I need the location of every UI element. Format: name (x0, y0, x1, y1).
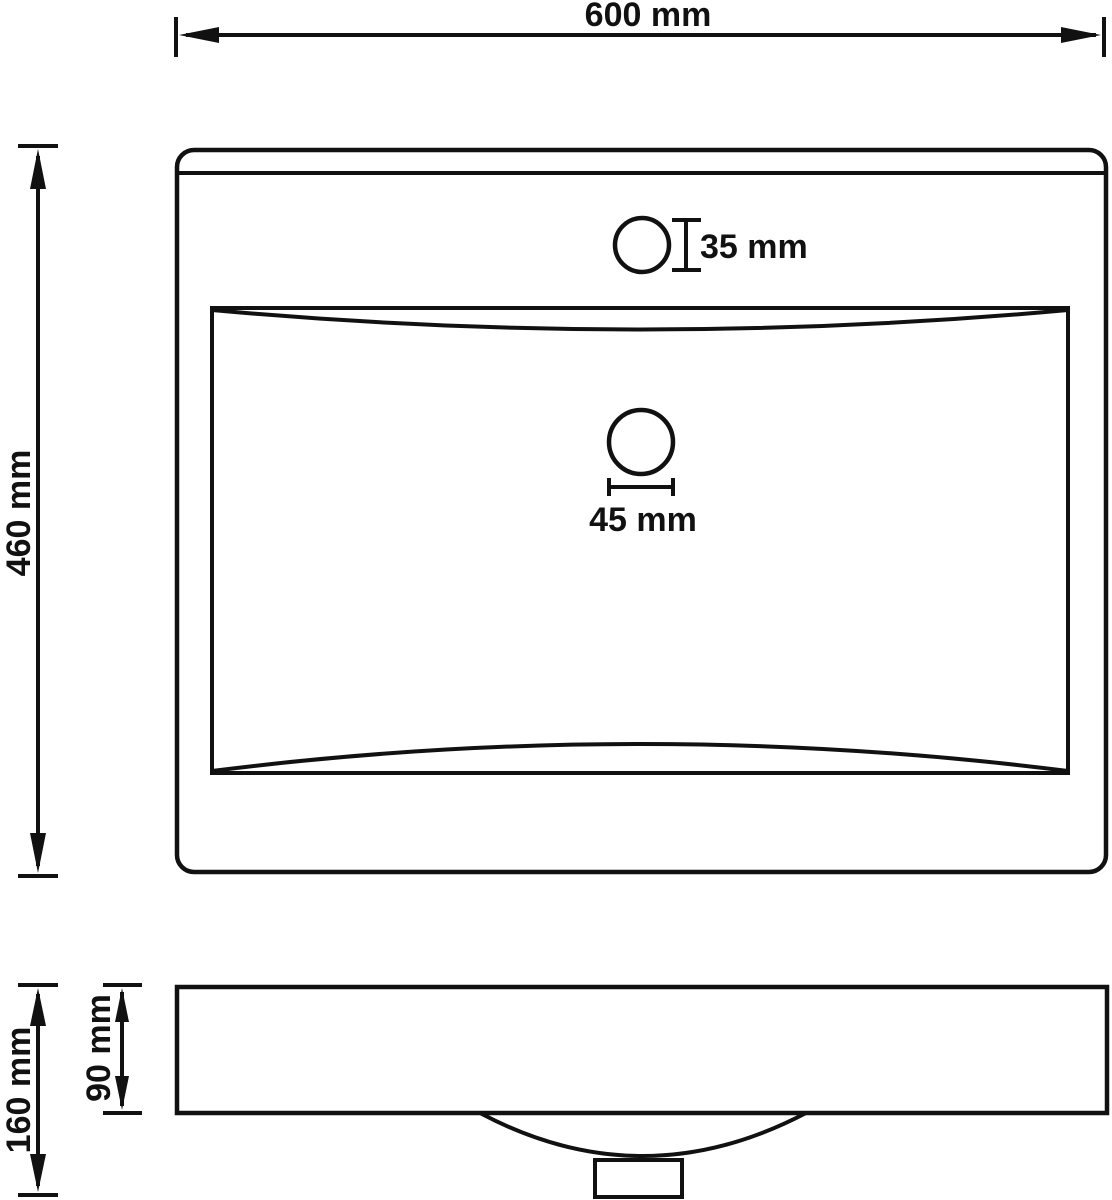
arrowhead-left-icon (179, 27, 219, 43)
dimension-drain-hole: 45 mm (589, 478, 697, 539)
arrowhead-down-icon (30, 833, 46, 873)
faucet-hole-label: 35 mm (700, 228, 808, 266)
drain-pipe-stub (595, 1160, 682, 1197)
basin-top-slope-curve (212, 310, 1068, 330)
arrowhead-up-icon (30, 988, 46, 1026)
sink-technical-drawing: 600 mm 460 mm 35 mm (0, 0, 1112, 1200)
dimension-left-height: 460 mm (0, 146, 58, 876)
top-plan-view: 35 mm 45 mm (177, 150, 1106, 872)
countertop-profile (177, 987, 1107, 1113)
arrowhead-up-icon (30, 149, 46, 189)
top-width-label: 600 mm (585, 0, 712, 34)
drawing-canvas: 600 mm 460 mm 35 mm (0, 0, 1112, 1200)
arrowhead-down-icon (30, 1154, 46, 1192)
dimension-top-width: 600 mm (176, 0, 1104, 57)
basin-depth-label: 90 mm (80, 994, 118, 1102)
dimension-basin-depth: 90 mm (80, 985, 142, 1113)
total-height-label: 160 mm (0, 1027, 38, 1154)
basin-inner-edge (212, 308, 1068, 773)
faucet-hole-circle (615, 218, 669, 272)
basin-underside-curve (480, 1113, 806, 1156)
basin-bottom-slope-curve (212, 744, 1068, 771)
dimension-faucet-hole: 35 mm (672, 220, 808, 270)
arrowhead-right-icon (1061, 27, 1101, 43)
drain-hole-circle (609, 410, 673, 474)
drain-hole-label: 45 mm (589, 501, 697, 539)
left-height-label: 460 mm (0, 450, 38, 577)
side-profile-view (177, 987, 1107, 1197)
dimension-total-height: 160 mm (0, 985, 58, 1195)
